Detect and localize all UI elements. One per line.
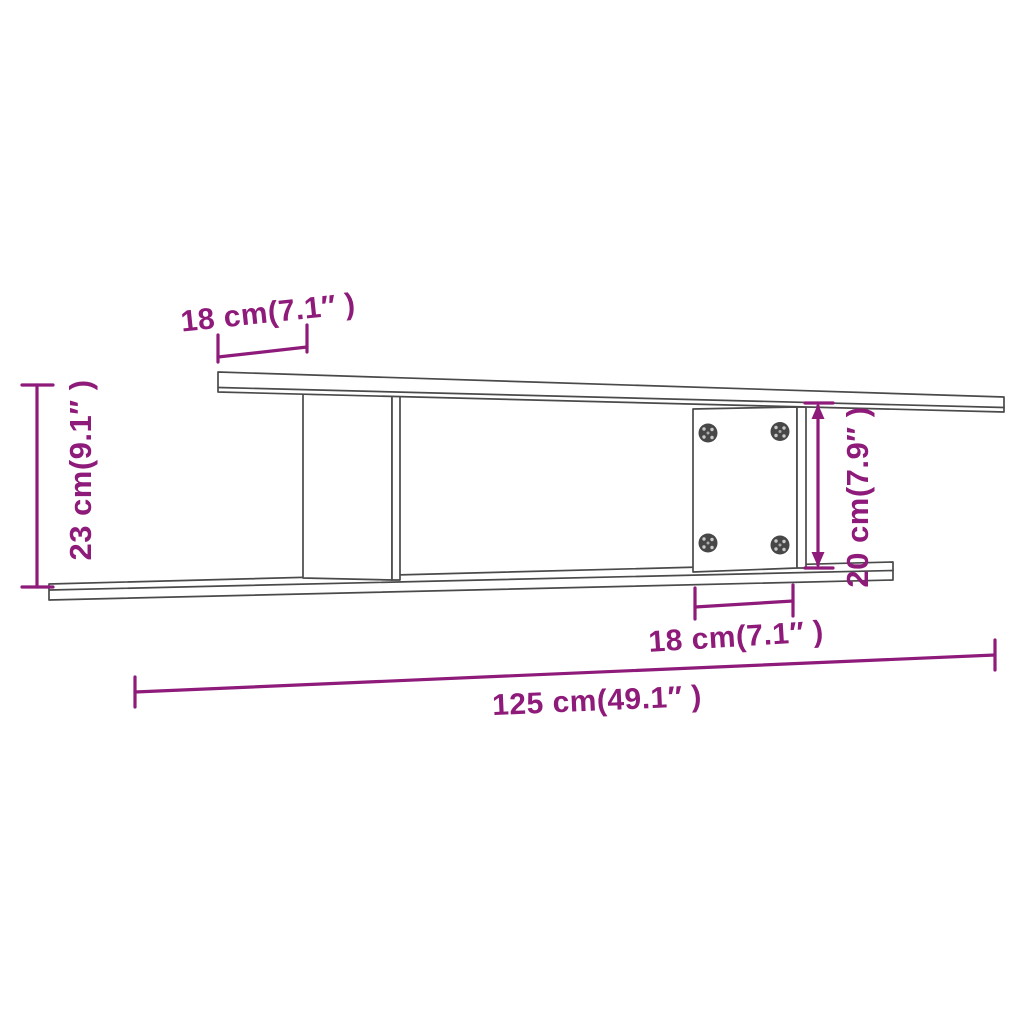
screw-icon (699, 424, 718, 443)
dim-total-width-label: 125 cm(49.1″ ) (492, 680, 703, 722)
dim-bottom-depth-label: 18 cm(7.1″ ) (647, 615, 824, 659)
wall-shelf-diagram: 18 cm(7.1″ ) 23 cm(9.1″ ) 20 cm(7.9″ ) 1… (0, 0, 1024, 1024)
screw-icon (771, 536, 790, 555)
left-panel (303, 394, 392, 580)
dim-left-height-label: 23 cm(9.1″ ) (63, 379, 98, 560)
screw-icon (699, 534, 718, 553)
dim-right-height-label: 20 cm(7.9″ ) (840, 406, 875, 587)
product-dimension-page: 18 cm(7.1″ ) 23 cm(9.1″ ) 20 cm(7.9″ ) 1… (0, 0, 1024, 1024)
dim-top-depth-label: 18 cm(7.1″ ) (179, 287, 357, 338)
left-panel-side (392, 396, 400, 580)
dim-left-height (22, 385, 53, 587)
dim-right-height (805, 403, 833, 568)
dim-bottom-depth (695, 585, 793, 619)
screw-icon (771, 422, 790, 441)
right-panel-side (797, 407, 806, 568)
